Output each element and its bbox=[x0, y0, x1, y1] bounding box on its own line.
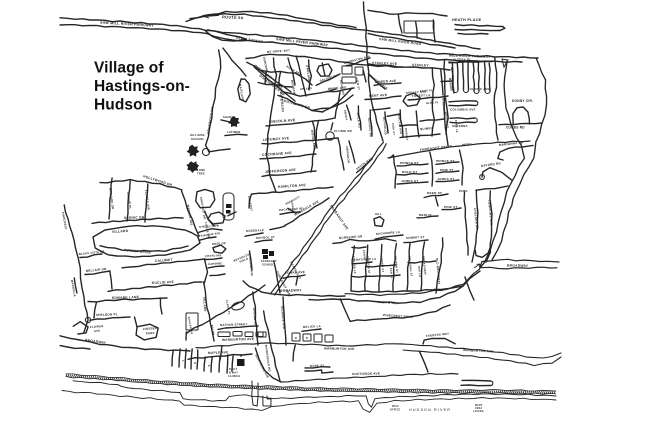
svg-text:SCHOOL: SCHOOL bbox=[262, 264, 274, 267]
svg-text:ROSE ST: ROSE ST bbox=[310, 363, 325, 368]
svg-text:JAMES ST: JAMES ST bbox=[401, 179, 418, 183]
svg-text:SCENIC DR: SCENIC DR bbox=[124, 215, 145, 220]
svg-text:COLUMBIA AVE: COLUMBIA AVE bbox=[450, 108, 476, 112]
svg-text:Hastings-on-: Hastings-on- bbox=[94, 78, 190, 95]
svg-text:LATIMER: LATIMER bbox=[227, 130, 241, 134]
svg-text:LONE: LONE bbox=[197, 168, 205, 172]
svg-text:SCHOOL: SCHOOL bbox=[191, 137, 205, 141]
svg-text:STANLEY: STANLEY bbox=[412, 63, 430, 68]
svg-text:LAVANA: LAVANA bbox=[473, 410, 484, 413]
svg-text:PINE ST: PINE ST bbox=[444, 205, 457, 209]
svg-text:MAPLE AVE: MAPLE AVE bbox=[208, 350, 229, 355]
svg-text:AVE: AVE bbox=[94, 329, 101, 333]
svg-text:PARK: PARK bbox=[459, 189, 468, 193]
svg-text:MERLIN: MERLIN bbox=[419, 213, 432, 217]
svg-text:MARY: MARY bbox=[475, 404, 483, 407]
svg-text:CARMINE: CARMINE bbox=[208, 261, 222, 266]
svg-text:OFFICE: OFFICE bbox=[390, 409, 400, 412]
svg-text:PARK: PARK bbox=[146, 331, 156, 336]
svg-text:LAUNCH: LAUNCH bbox=[228, 375, 240, 378]
svg-text:B: B bbox=[306, 337, 308, 340]
svg-text:SOUTHSIDE AVE: SOUTHSIDE AVE bbox=[352, 372, 380, 376]
svg-text:PINE ST: PINE ST bbox=[440, 168, 454, 172]
svg-text:JAMES ST: JAMES ST bbox=[437, 177, 454, 181]
svg-text:DONNY CIR.: DONNY CIR. bbox=[512, 99, 533, 103]
svg-text:HUDSON RIVER: HUDSON RIVER bbox=[409, 408, 451, 412]
svg-text:HEATH PLACE: HEATH PLACE bbox=[452, 18, 482, 22]
svg-text:DEER ST: DEER ST bbox=[427, 191, 442, 195]
svg-text:PRINCE ST: PRINCE ST bbox=[436, 159, 455, 163]
svg-text:Hudson: Hudson bbox=[94, 97, 152, 114]
svg-text:VERA: VERA bbox=[475, 407, 482, 410]
svg-text:BROADWAY: BROADWAY bbox=[280, 288, 302, 293]
svg-text:WARBURTON AVE: WARBURTON AVE bbox=[324, 347, 355, 352]
svg-text:ALTERA PL: ALTERA PL bbox=[453, 58, 471, 62]
svg-text:HILL: HILL bbox=[375, 212, 382, 216]
svg-text:CLUNIE DR: CLUNIE DR bbox=[334, 129, 353, 133]
svg-text:B: B bbox=[295, 337, 297, 340]
svg-text:Village of: Village of bbox=[94, 60, 164, 77]
svg-text:CLOTIC AVE: CLOTIC AVE bbox=[470, 87, 490, 91]
svg-text:CURBS RD: CURBS RD bbox=[506, 126, 525, 130]
svg-text:BOLD ST: BOLD ST bbox=[402, 170, 417, 174]
svg-text:SHELDON PL: SHELDON PL bbox=[96, 312, 118, 317]
svg-text:PRINCE ST: PRINCE ST bbox=[400, 161, 419, 165]
svg-text:TREE: TREE bbox=[197, 172, 205, 176]
svg-text:BROADWAY: BROADWAY bbox=[507, 264, 529, 268]
